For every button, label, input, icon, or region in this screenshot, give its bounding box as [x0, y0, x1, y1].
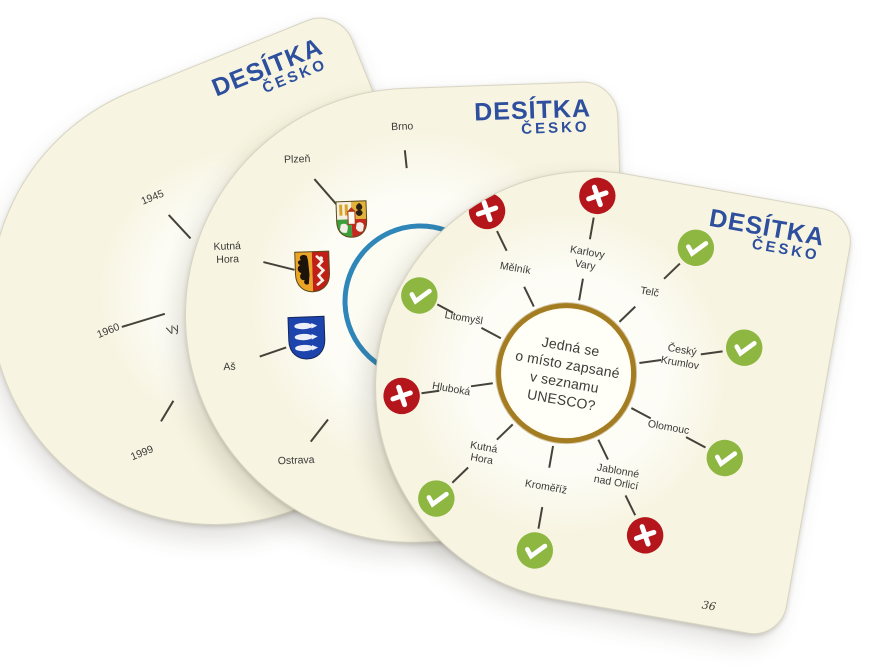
- city-label: Ostrava: [278, 454, 315, 468]
- spoke-line: [538, 507, 543, 529]
- city-label: Olomouc: [647, 418, 691, 438]
- label-line: Ostrava: [278, 454, 315, 467]
- year-label: 1960: [95, 321, 121, 341]
- check-icon: [513, 529, 556, 572]
- coat-of-arms-plzen: [335, 200, 368, 244]
- check-icon: [415, 477, 458, 520]
- x-icon: [576, 174, 619, 217]
- check-icon: [704, 436, 747, 479]
- label-line: Hluboká: [431, 380, 471, 399]
- coat-of-arms-kutna-hora: [294, 250, 331, 293]
- coat-of-arms-plzen: [335, 200, 368, 239]
- card-number: 36: [701, 598, 717, 613]
- coat-of-arms-kutna-hora: [294, 250, 332, 298]
- x-icon: [380, 375, 423, 418]
- answer-badge-yes: [723, 327, 766, 370]
- check-icon: [398, 274, 441, 317]
- spoke-line: [496, 424, 513, 440]
- spoke-line: [686, 436, 706, 448]
- card-front: KarlovyVaryTelčČeskýKrumlovOlomoucJablon…: [341, 136, 856, 639]
- spoke-line: [260, 347, 287, 358]
- answer-badge-yes: [513, 529, 556, 572]
- label-line: Plzeň: [284, 153, 311, 166]
- answer-badge-yes: [398, 274, 441, 317]
- label-line: Brno: [391, 121, 414, 134]
- answer-badge-no: [466, 190, 509, 233]
- spoke-line: [639, 359, 661, 364]
- city-label: Plzeň: [284, 153, 311, 167]
- city-label: Kroměříž: [524, 477, 568, 497]
- spoke-line: [404, 150, 407, 168]
- spoke-line: [578, 278, 583, 300]
- spoke-line: [523, 287, 534, 307]
- spoke-line: [471, 383, 493, 388]
- city-label: ČeskýKrumlov: [660, 341, 702, 372]
- spoke-line: [619, 306, 636, 322]
- year-label: 1999: [129, 443, 155, 463]
- city-label: Telč: [639, 285, 660, 301]
- label-line: Telč: [639, 285, 659, 300]
- label-line: Litomyšl: [444, 309, 484, 328]
- spoke-line: [625, 495, 636, 515]
- city-label: Jablonnénad Orlicí: [593, 461, 642, 494]
- spoke-line: [496, 231, 507, 251]
- spoke-line: [663, 263, 680, 279]
- check-icon: [723, 327, 766, 370]
- city-label: Litomyšl: [444, 309, 484, 328]
- spoke-line: [589, 217, 594, 239]
- city-label: Mělník: [499, 260, 532, 278]
- label-line: 1999: [129, 443, 155, 463]
- city-label: KutnáHora: [213, 240, 241, 266]
- spoke-line: [701, 350, 723, 355]
- answer-badge-yes: [704, 436, 747, 479]
- x-icon: [466, 190, 509, 233]
- spoke-line: [452, 467, 469, 483]
- answer-badge-no: [380, 375, 423, 418]
- photo-canvas: DESÍTKA ČESKO 194519601999 Vy DESÍTKA ČE…: [0, 0, 882, 669]
- spoke-line: [263, 261, 294, 270]
- spoke-line: [310, 419, 328, 442]
- label-line: Mělník: [499, 260, 532, 277]
- spoke-line: [598, 439, 609, 459]
- year-label: 1945: [140, 188, 166, 208]
- label-line: Kroměříž: [524, 477, 568, 496]
- city-label: KutnáHora: [467, 439, 498, 469]
- answer-badge-no: [624, 513, 667, 556]
- label-line: 1960: [95, 321, 121, 341]
- city-label: Aš: [223, 361, 236, 374]
- spoke-line: [161, 400, 175, 421]
- city-label: Hluboká: [431, 380, 471, 399]
- answer-badge-yes: [415, 477, 458, 520]
- answer-badge-no: [576, 174, 619, 217]
- label-line: Vary: [574, 257, 597, 272]
- city-label: KarlovyVary: [567, 243, 606, 274]
- spoke-line: [481, 327, 501, 339]
- label-line: Hora: [469, 452, 494, 468]
- city-label: Brno: [391, 121, 414, 134]
- label-line: Kutná: [213, 240, 241, 253]
- spoke-line: [122, 313, 165, 328]
- spoke-line: [549, 446, 554, 468]
- label-line: Aš: [223, 361, 236, 373]
- coat-of-arms-as: [287, 315, 327, 365]
- coat-of-arms-as: [287, 315, 327, 360]
- label-line: Hora: [216, 253, 239, 266]
- label-line: 1945: [140, 188, 166, 208]
- label-line: Olomouc: [647, 418, 690, 437]
- x-icon: [624, 513, 667, 556]
- question-text: Jedná se o místo zapsané v seznamu UNESC…: [508, 328, 625, 418]
- spoke-line: [314, 179, 338, 206]
